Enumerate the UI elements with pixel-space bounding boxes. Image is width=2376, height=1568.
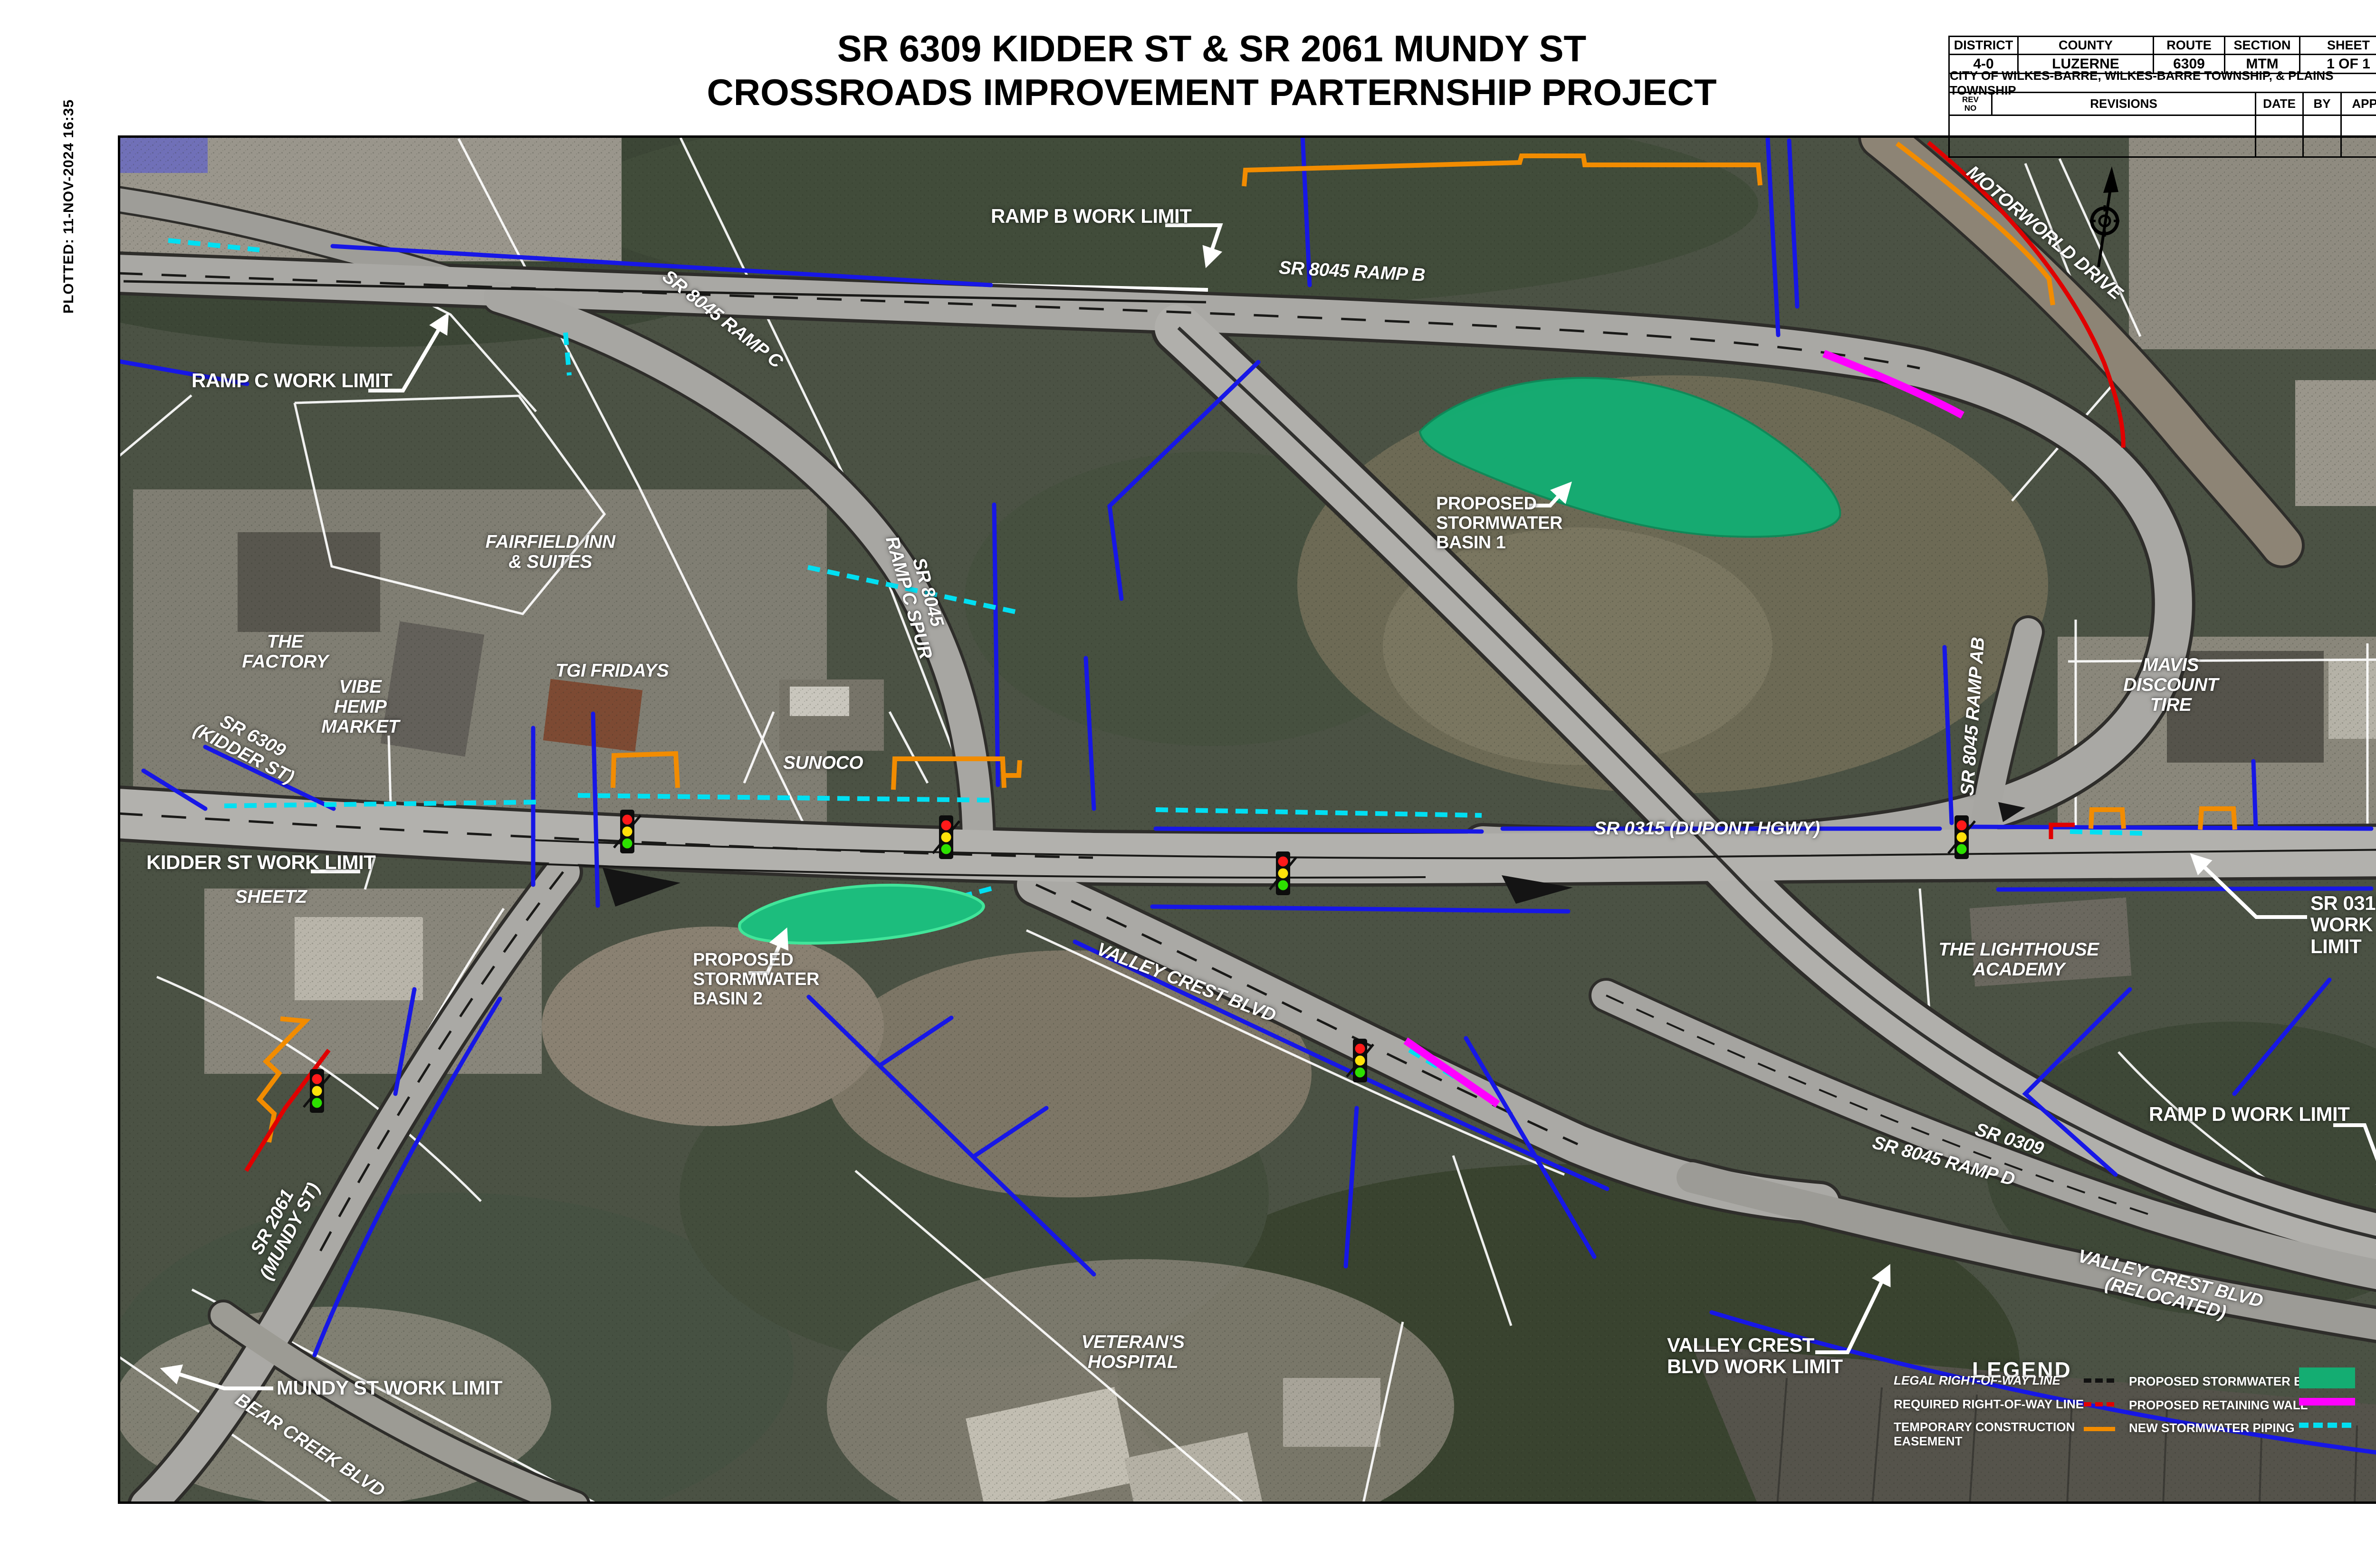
- tb-rev-by: BY: [2302, 92, 2342, 116]
- tb-header-district: DISTRICT: [1948, 36, 2019, 55]
- tb-header-sheet: SHEET: [2299, 36, 2376, 55]
- plan-map-canvas: [0, 0, 2376, 1568]
- tb-empty-row2-appd: [2340, 135, 2376, 158]
- label-kidder-st-work-limit: KIDDER ST WORK LIMIT: [146, 851, 375, 873]
- legend-swatch-stormwater-basin: [2299, 1367, 2355, 1388]
- tb-city-row: CITY OF WILKES-BARRE, WILKES-BARRE TOWNS…: [1948, 73, 2376, 93]
- label-sr0315-work-limit: SR 0315 WORK LIMIT: [2310, 892, 2376, 957]
- label-the-factory: THE FACTORY: [242, 632, 328, 672]
- plan-sheet: { "sheet": { "plotted": "PLOTTED: 11-NOV…: [0, 0, 2376, 1568]
- label-valley-crest-blvd-work-limit: VALLEY CREST BLVD WORK LIMIT: [1667, 1334, 1843, 1377]
- tb-rev-no: REV NO: [1948, 92, 1993, 116]
- label-mavis-discount-tire: MAVIS DISCOUNT TIRE: [2123, 655, 2218, 715]
- tb-header-county: COUNTY: [2017, 36, 2154, 55]
- legend-swatch-legal-row-line: [2084, 1378, 2115, 1383]
- tb-rev-appd: APPD: [2340, 92, 2376, 116]
- tb-empty-row2-left: [1948, 135, 2256, 158]
- label-sunoco: SUNOCO: [783, 753, 863, 773]
- legend-item-new-stormwater-piping: NEW STORMWATER PIPING: [2129, 1421, 2295, 1435]
- legend-swatch-retaining-wall: [2299, 1398, 2355, 1405]
- label-proposed-stormwater-basin-2: PROPOSED STORMWATER BASIN 2: [693, 950, 819, 1009]
- legend-item-required-row: REQUIRED RIGHT-OF-WAY LINE: [1894, 1397, 2084, 1411]
- legend-item-legal-row: LEGAL RIGHT-OF-WAY LINE: [1894, 1373, 2060, 1387]
- tb-rev-date: DATE: [2255, 92, 2304, 116]
- legend-item-proposed-retaining-wall: PROPOSED RETAINING WALL: [2129, 1398, 2308, 1412]
- tb-empty-row2-by: [2302, 135, 2342, 158]
- tb-empty-row2-date: [2255, 135, 2304, 158]
- legend-swatch-tce-line: [2084, 1427, 2115, 1431]
- label-mundy-st-work-limit: MUNDY ST WORK LIMIT: [277, 1377, 502, 1398]
- tb-header-section: SECTION: [2224, 36, 2300, 55]
- label-sheetz: SHEETZ: [235, 887, 307, 907]
- tb-empty-row1-left: [1948, 115, 2256, 137]
- label-veterans-hospital: VETERAN'S HOSPITAL: [1081, 1332, 1184, 1372]
- tb-header-route: ROUTE: [2153, 36, 2225, 55]
- label-ramp-d-work-limit: RAMP D WORK LIMIT: [2149, 1103, 2349, 1125]
- label-fairfield-inn-suites: FAIRFIELD INN & SUITES: [486, 532, 615, 572]
- tb-empty-row1-by: [2302, 115, 2342, 137]
- legend-swatch-stormwater-piping: [2299, 1423, 2355, 1428]
- label-sr0315-dupont-hgwy: SR 0315 (DUPONT HGWY): [1594, 819, 1820, 839]
- legend-swatch-required-row-line: [2084, 1402, 2115, 1406]
- label-vibe-hemp-market: VIBE HEMP MARKET: [321, 677, 399, 737]
- label-the-lighthouse-academy: THE LIGHTHOUSE ACADEMY: [1938, 940, 2099, 980]
- label-ramp-c-work-limit: RAMP C WORK LIMIT: [192, 370, 392, 391]
- label-tgi-fridays: TGI FRIDAYS: [556, 661, 669, 681]
- tb-empty-row1-date: [2255, 115, 2304, 137]
- label-proposed-stormwater-basin-1: PROPOSED STORMWATER BASIN 1: [1436, 494, 1562, 553]
- label-ramp-b-work-limit: RAMP B WORK LIMIT: [991, 205, 1191, 227]
- legend-item-temporary-construction-easement: TEMPORARY CONSTRUCTION EASEMENT: [1894, 1420, 2075, 1448]
- tb-revisions: REVISIONS: [1991, 92, 2256, 116]
- tb-empty-row1-appd: [2340, 115, 2376, 137]
